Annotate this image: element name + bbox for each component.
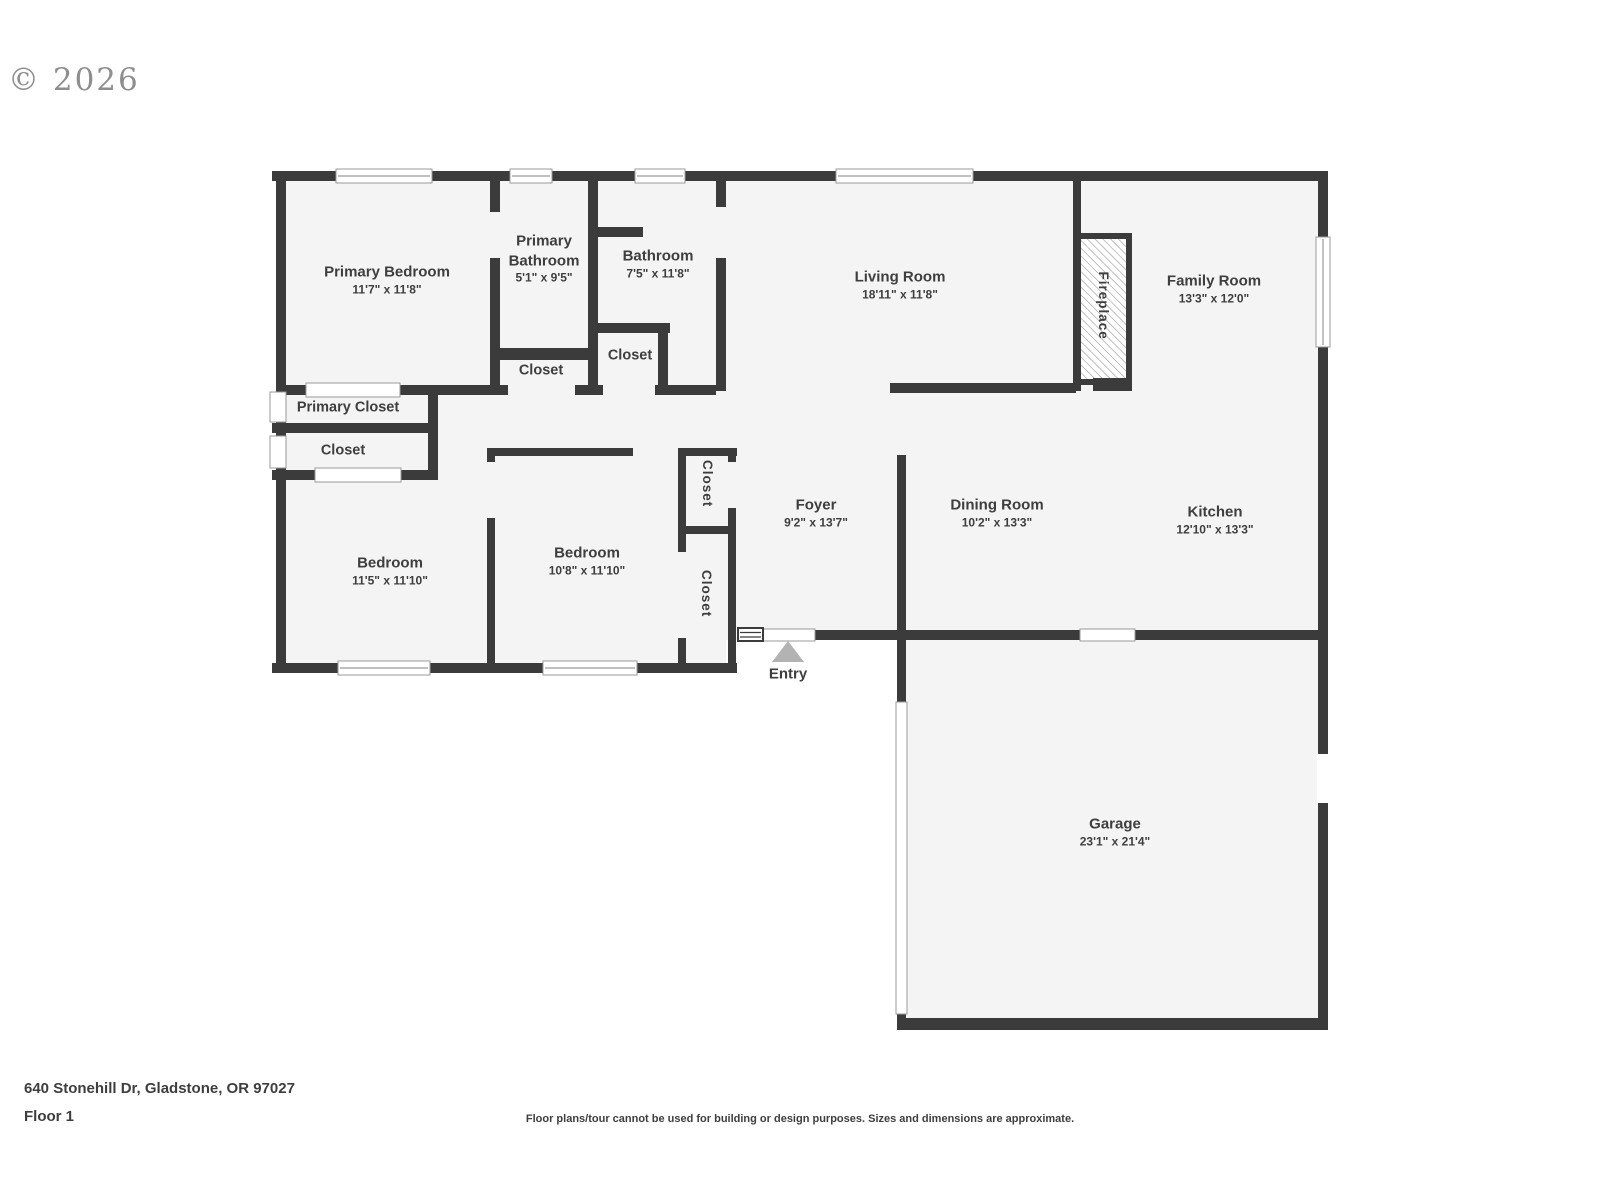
room-label-kitchen: Kitchen 12'10" x 13'3" <box>1176 502 1253 537</box>
wall-segment <box>598 227 643 237</box>
room-name: Closet <box>608 347 652 366</box>
wall-segment <box>678 526 736 534</box>
wall-segment <box>1073 181 1081 391</box>
room-name: Closet <box>698 460 716 507</box>
room-label-closet-hall: Closet <box>321 442 365 461</box>
room-label-fireplace: Fireplace <box>1094 271 1112 346</box>
room-dims: 13'3" x 12'0" <box>1167 291 1261 307</box>
window <box>1080 629 1135 641</box>
wall-segment <box>716 181 726 207</box>
wall-segment <box>897 455 906 702</box>
window <box>270 436 286 468</box>
wall-segment <box>428 385 438 480</box>
disclaimer-text: Floor plans/tour cannot be used for buil… <box>0 1113 1600 1125</box>
wall-segment <box>906 630 1080 640</box>
room-dims: 11'5" x 11'10" <box>352 573 428 589</box>
room-label-entry: Entry <box>769 664 807 684</box>
room-label-primary-closet: Primary Closet <box>297 399 399 418</box>
window <box>306 383 400 397</box>
room-label-living-room: Living Room 18'11" x 11'8" <box>855 267 946 302</box>
room-name: Bedroom <box>549 543 625 563</box>
room-dims: 7'5" x 11'8" <box>623 266 694 282</box>
room-label-bathroom: Bathroom 7'5" x 11'8" <box>623 246 694 281</box>
room-dims: 5'1" x 9'5" <box>497 271 591 287</box>
room-name: Kitchen <box>1176 502 1253 522</box>
room-label-foyer: Foyer 9'2" x 13'7" <box>784 495 848 530</box>
wall-segment <box>272 423 438 433</box>
room-dims: 23'1" x 21'4" <box>1080 834 1150 850</box>
wall-segment <box>728 456 736 462</box>
room-label-primary-bathroom: Primary Bathroom 5'1" x 9'5" <box>497 232 591 287</box>
room-dims: 10'8" x 11'10" <box>549 563 625 579</box>
property-address: 640 Stonehill Dr, Gladstone, OR 97027 <box>24 1080 295 1097</box>
window <box>270 392 286 422</box>
room-label-closet-lower: Closet <box>697 570 715 624</box>
room-label-dining-room: Dining Room 10'2" x 13'3" <box>950 495 1043 530</box>
room-name: Family Room <box>1167 271 1261 291</box>
wall-segment <box>678 448 737 456</box>
room-label-family-room: Family Room 13'3" x 12'0" <box>1167 271 1261 306</box>
room-name: Bedroom <box>352 553 428 573</box>
room-name: Closet <box>321 442 365 461</box>
room-label-closet-linen: Closet <box>519 362 563 381</box>
room-dims: 10'2" x 13'3" <box>950 515 1043 531</box>
room-dims: 18'11" x 11'8" <box>855 287 946 303</box>
room-name: Closet <box>519 362 563 381</box>
floorplan-page: Primary Bedroom 11'7" x 11'8" Primary Ba… <box>0 0 1600 1200</box>
room-name: Fireplace <box>1094 271 1112 339</box>
room-dims: 11'7" x 11'8" <box>324 282 450 298</box>
room-name: Primary Bedroom <box>324 262 450 282</box>
room-name: Primary Closet <box>297 399 399 418</box>
room-name: Foyer <box>784 495 848 515</box>
entry-arrow-icon <box>772 641 804 662</box>
wall-segment <box>1135 630 1318 640</box>
wall-segment <box>1318 347 1328 754</box>
room-name: Dining Room <box>950 495 1043 515</box>
wall-segment <box>1318 803 1328 1030</box>
room-label-primary-bedroom: Primary Bedroom 11'7" x 11'8" <box>324 262 450 297</box>
floorplan-drawing <box>0 0 1600 1200</box>
wall-segment <box>1093 378 1132 391</box>
wall-segment <box>1318 181 1328 237</box>
room-name: Living Room <box>855 267 946 287</box>
room-dims: 9'2" x 13'7" <box>784 515 848 531</box>
wall-segment <box>490 348 592 360</box>
entry-door-icon <box>738 628 763 641</box>
room-name: Bathroom <box>623 246 694 266</box>
wall-segment <box>487 518 495 663</box>
wall-segment <box>897 1018 1328 1030</box>
door-opening <box>1317 754 1329 803</box>
room-label-closet-upper: Closet <box>698 460 716 514</box>
wall-segment <box>678 638 686 673</box>
wall-segment <box>716 258 726 391</box>
room-label-garage: Garage 23'1" x 21'4" <box>1080 814 1150 849</box>
window <box>315 468 401 482</box>
window <box>896 702 907 1014</box>
room-name: Closet <box>697 570 715 617</box>
wall-segment <box>658 323 668 391</box>
wall-segment <box>890 383 1076 393</box>
room-name: Entry <box>769 664 807 684</box>
room-label-bedroom-left: Bedroom 11'5" x 11'10" <box>352 553 428 588</box>
room-label-closet-bath: Closet <box>608 347 652 366</box>
room-dims: 12'10" x 13'3" <box>1176 522 1253 538</box>
wall-segment <box>815 630 897 640</box>
copyright-watermark: © 2026 <box>8 62 140 98</box>
wall-segment <box>490 181 500 212</box>
window <box>762 629 815 641</box>
room-name: Primary Bathroom <box>497 232 591 271</box>
wall-segment <box>487 448 633 456</box>
wall-segment <box>678 456 686 552</box>
room-label-bedroom-middle: Bedroom 10'8" x 11'10" <box>549 543 625 578</box>
room-name: Garage <box>1080 814 1150 834</box>
